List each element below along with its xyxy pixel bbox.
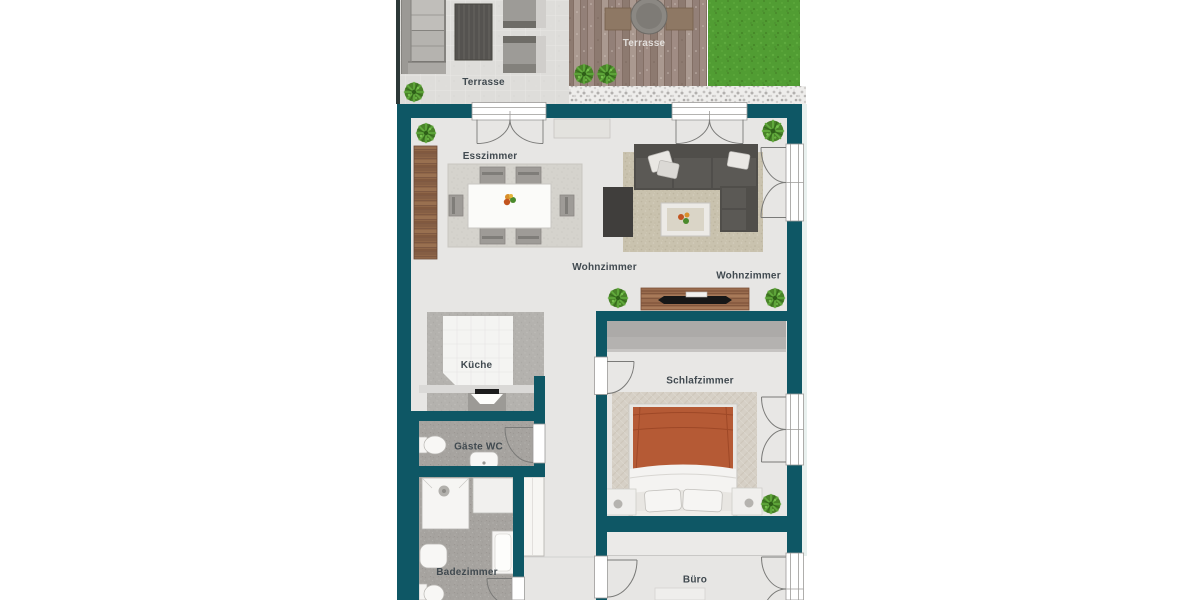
svg-text:Esszimmer: Esszimmer	[463, 151, 518, 162]
svg-text:Badezimmer: Badezimmer	[436, 567, 497, 578]
svg-text:Schlafzimmer: Schlafzimmer	[666, 376, 733, 387]
svg-text:Küche: Küche	[461, 360, 493, 371]
svg-text:Gäste WC: Gäste WC	[454, 442, 503, 453]
svg-text:Terrasse: Terrasse	[462, 77, 505, 88]
svg-text:Terrasse: Terrasse	[623, 38, 666, 49]
svg-text:Wohnzimmer: Wohnzimmer	[572, 262, 637, 273]
svg-text:Wohnzimmer: Wohnzimmer	[716, 271, 781, 282]
svg-text:Büro: Büro	[683, 575, 707, 586]
